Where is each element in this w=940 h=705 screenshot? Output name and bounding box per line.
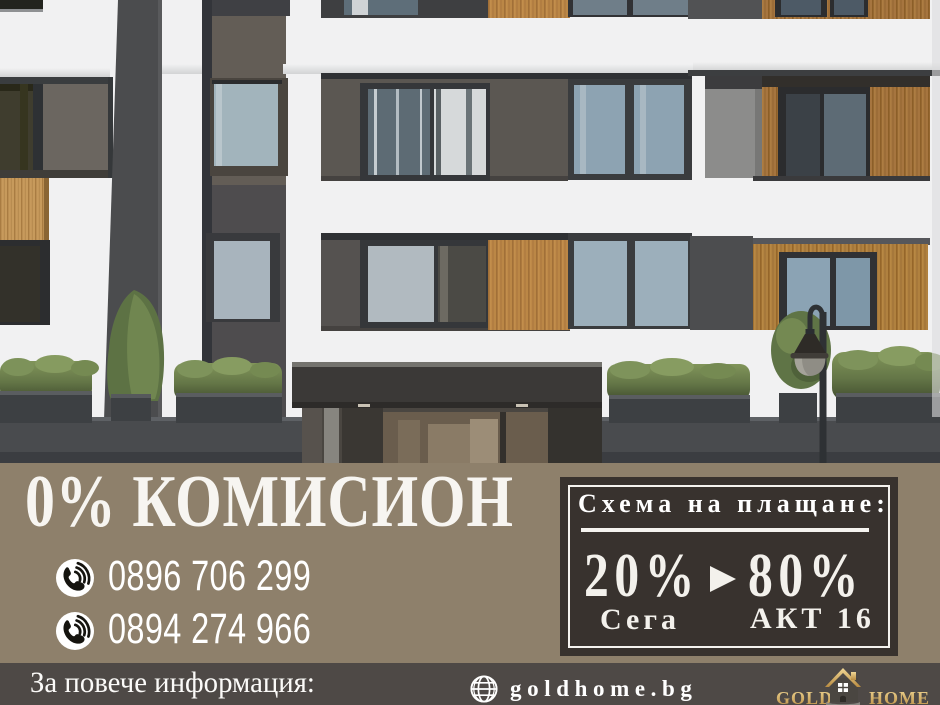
svg-text:HOME: HOME [869,688,930,705]
svg-text:GOLD: GOLD [776,688,833,705]
